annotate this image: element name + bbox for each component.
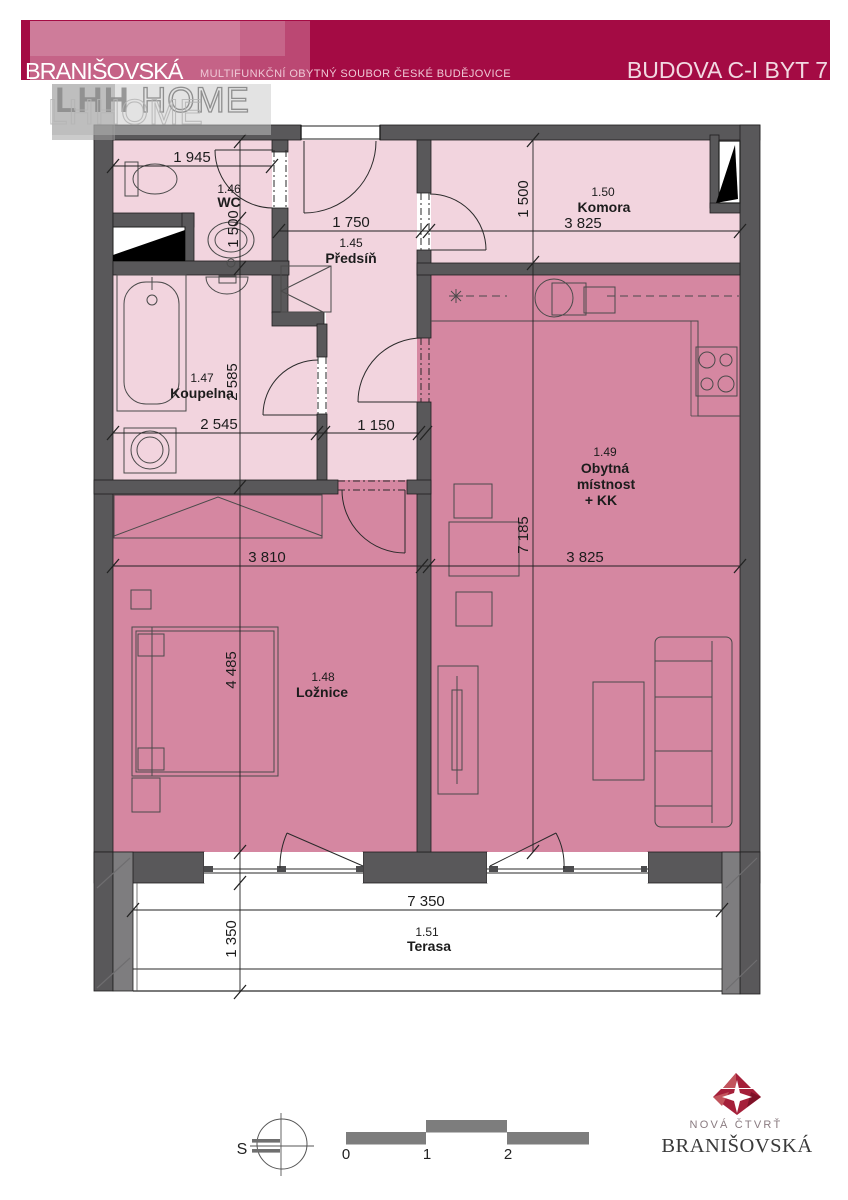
svg-text:Obytná: Obytná xyxy=(581,460,629,476)
svg-text:Předsíň: Předsíň xyxy=(325,250,376,266)
svg-text:3 825: 3 825 xyxy=(566,549,604,566)
svg-text:3 810: 3 810 xyxy=(248,549,286,566)
svg-text:BRANIŠOVSKÁ: BRANIŠOVSKÁ xyxy=(661,1133,812,1157)
svg-text:NOVÁ ČTVRŤ: NOVÁ ČTVRŤ xyxy=(690,1118,783,1131)
svg-text:WC: WC xyxy=(217,194,240,210)
svg-text:7 185: 7 185 xyxy=(515,516,532,554)
svg-text:BRANIŠOVSKÁ: BRANIŠOVSKÁ xyxy=(25,57,184,84)
svg-text:1.47: 1.47 xyxy=(190,371,214,385)
svg-text:4 485: 4 485 xyxy=(223,651,240,689)
svg-text:Koupelna: Koupelna xyxy=(170,385,234,401)
svg-text:S: S xyxy=(237,1141,248,1158)
svg-text:1.49: 1.49 xyxy=(593,445,617,459)
svg-text:LHHOME: LHHOME xyxy=(48,93,204,132)
svg-text:1: 1 xyxy=(423,1146,431,1163)
svg-text:2 545: 2 545 xyxy=(200,416,238,433)
svg-text:1 500: 1 500 xyxy=(225,210,242,248)
svg-text:místnost: místnost xyxy=(577,476,636,492)
svg-text:Ložnice: Ložnice xyxy=(296,684,348,700)
svg-text:1 350: 1 350 xyxy=(223,920,240,958)
svg-text:1 750: 1 750 xyxy=(332,214,370,231)
svg-text:1.48: 1.48 xyxy=(311,670,335,684)
svg-text:3 825: 3 825 xyxy=(564,215,602,232)
svg-text:2: 2 xyxy=(504,1146,512,1163)
svg-text:Terasa: Terasa xyxy=(407,938,451,954)
svg-text:0: 0 xyxy=(342,1146,350,1163)
svg-text:MULTIFUNKČNÍ OBYTNÝ SOUBOR ČES: MULTIFUNKČNÍ OBYTNÝ SOUBOR ČESKÉ BUDĚJOV… xyxy=(200,67,511,80)
svg-text:BUDOVA C-I BYT 7: BUDOVA C-I BYT 7 xyxy=(627,57,828,83)
svg-text:1.50: 1.50 xyxy=(591,185,615,199)
svg-text:Komora: Komora xyxy=(578,199,631,215)
svg-text:1 945: 1 945 xyxy=(173,149,211,166)
svg-text:1.51: 1.51 xyxy=(415,925,439,939)
svg-text:+ KK: + KK xyxy=(585,492,617,508)
svg-text:1 150: 1 150 xyxy=(357,417,395,434)
svg-text:1.45: 1.45 xyxy=(339,236,363,250)
svg-text:7 350: 7 350 xyxy=(407,893,445,910)
svg-text:1 500: 1 500 xyxy=(515,180,532,218)
